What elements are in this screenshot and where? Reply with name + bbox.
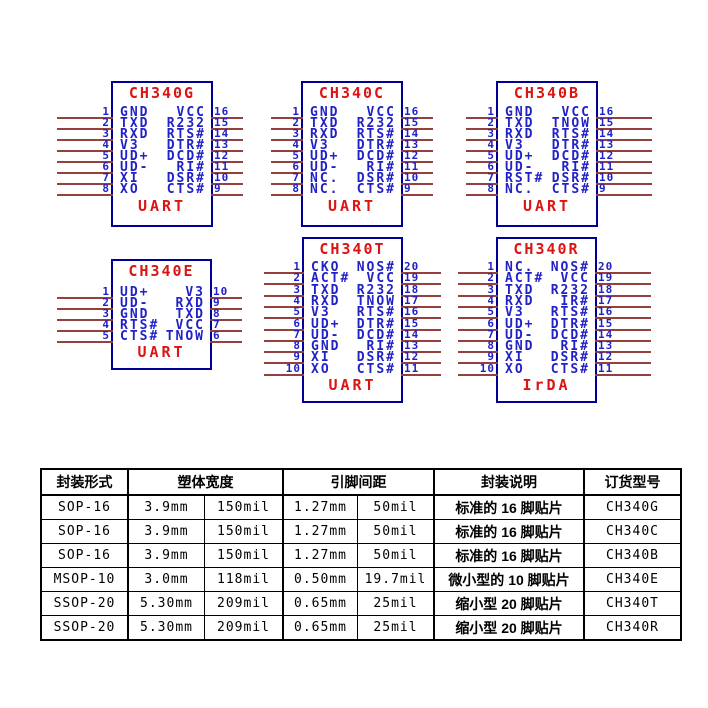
- table-cell: 50mil: [358, 495, 435, 520]
- pin-number: 9: [404, 183, 426, 194]
- pin-number: 16: [404, 306, 426, 317]
- pin-number: 5: [473, 306, 495, 317]
- pin-number: 11: [598, 363, 620, 374]
- pin-number: 5: [279, 306, 301, 317]
- chip-title: CH340G: [113, 85, 211, 101]
- table-header-row: 封装形式塑体宽度引脚间距封装说明订货型号: [41, 469, 681, 495]
- table-cell: 3.9mm: [128, 544, 205, 568]
- pin-number: 12: [598, 351, 620, 362]
- chip-title: CH340B: [498, 85, 596, 101]
- pin-label: XO: [505, 363, 525, 376]
- table-cell: SOP-16: [41, 520, 128, 544]
- chip-function-label: UART: [113, 344, 210, 360]
- chip-title: CH340T: [304, 241, 401, 257]
- table-cell: 标准的 16 脚贴片: [434, 520, 584, 544]
- package-spec-table-wrap: 封装形式塑体宽度引脚间距封装说明订货型号 SOP-163.9mm150mil1.…: [40, 468, 682, 641]
- table-cell: 3.9mm: [128, 520, 205, 544]
- table-cell: 5.30mm: [128, 592, 205, 616]
- pin-number: 3: [473, 284, 495, 295]
- table-cell: 209mil: [205, 592, 284, 616]
- table-cell: 50mil: [358, 544, 435, 568]
- table-cell: 微小型的 10 脚贴片: [434, 568, 584, 592]
- table-cell: 25mil: [358, 616, 435, 641]
- pin-number: 11: [404, 363, 426, 374]
- table-cell: 1.27mm: [283, 520, 358, 544]
- pin-number: 9: [599, 183, 621, 194]
- table-cell: CH340R: [584, 616, 681, 641]
- table-header-cell: 封装形式: [41, 469, 128, 495]
- pin-number: 9: [214, 183, 236, 194]
- pin-number: 2: [279, 272, 301, 283]
- chip-function-label: UART: [304, 377, 401, 393]
- table-cell: CH340B: [584, 544, 681, 568]
- table-cell: 0.50mm: [283, 568, 358, 592]
- pin-number: 18: [404, 284, 426, 295]
- chip-title: CH340E: [113, 263, 210, 279]
- pin-label: CTS#: [552, 183, 591, 196]
- chip-ch340r: CH340RNC.1ACT#2TXD3RXD4V35UD+6UD-7GND8XI…: [496, 237, 597, 403]
- pin-label: TNOW: [166, 330, 205, 343]
- table-row: SOP-163.9mm150mil1.27mm50mil标准的 16 脚贴片CH…: [41, 520, 681, 544]
- table-cell: 3.9mm: [128, 495, 205, 520]
- table-cell: CH340T: [584, 592, 681, 616]
- pin-label: XO: [120, 183, 140, 196]
- chip-function-label: UART: [303, 198, 401, 214]
- chip-ch340b: CH340BGND1TXD2RXD3V34UD+5UD-6RST#7NC.8VC…: [496, 81, 598, 227]
- table-cell: 150mil: [205, 544, 284, 568]
- pin-number: 6: [279, 318, 301, 329]
- table-row: SOP-163.9mm150mil1.27mm50mil标准的 16 脚贴片CH…: [41, 544, 681, 568]
- pin-number: 15: [404, 318, 426, 329]
- pin-number: 12: [404, 351, 426, 362]
- pin-number: 6: [473, 318, 495, 329]
- table-cell: 标准的 16 脚贴片: [434, 495, 584, 520]
- chip-function-label: IrDA: [498, 377, 595, 393]
- pin-label: NC.: [505, 183, 534, 196]
- package-spec-table: 封装形式塑体宽度引脚间距封装说明订货型号 SOP-163.9mm150mil1.…: [40, 468, 682, 641]
- table-row: SSOP-205.30mm209mil0.65mm25mil缩小型 20 脚贴片…: [41, 592, 681, 616]
- pin-number: 5: [88, 330, 110, 341]
- pin-number: 2: [473, 272, 495, 283]
- pin-label: CTS#: [357, 363, 396, 376]
- chip-function-label: UART: [498, 198, 596, 214]
- chip-title: CH340C: [303, 85, 401, 101]
- pin-number: 8: [88, 183, 110, 194]
- pin-label: CTS#: [357, 183, 396, 196]
- table-cell: 50mil: [358, 520, 435, 544]
- chip-ch340g: CH340GGND1TXD2RXD3V34UD+5UD-6XI7XO8VCC16…: [111, 81, 213, 227]
- pin-number: 10: [279, 363, 301, 374]
- pin-number: 9: [473, 351, 495, 362]
- table-row: MSOP-103.0mm118mil0.50mm19.7mil微小型的 10 脚…: [41, 568, 681, 592]
- table-cell: 1.27mm: [283, 544, 358, 568]
- pin-number: 18: [598, 284, 620, 295]
- chip-ch340t: CH340TCKO1ACT#2TXD3RXD4V35UD+6UD-7GND8XI…: [302, 237, 403, 403]
- chip-ch340e: CH340EUD+1UD-2GND3RTS#4CTS#5V310RXD9TXD8…: [111, 259, 212, 370]
- table-cell: MSOP-10: [41, 568, 128, 592]
- table-body: SOP-163.9mm150mil1.27mm50mil标准的 16 脚贴片CH…: [41, 495, 681, 640]
- table-header-cell: 塑体宽度: [128, 469, 283, 495]
- chip-title: CH340R: [498, 241, 595, 257]
- table-header-cell: 封装说明: [434, 469, 584, 495]
- table-cell: 19.7mil: [358, 568, 435, 592]
- table-cell: 缩小型 20 脚贴片: [434, 616, 584, 641]
- table-cell: CH340G: [584, 495, 681, 520]
- chip-function-label: UART: [113, 198, 211, 214]
- table-cell: 0.65mm: [283, 616, 358, 641]
- pin-label: CTS#: [167, 183, 206, 196]
- table-cell: SSOP-20: [41, 592, 128, 616]
- table-cell: 209mil: [205, 616, 284, 641]
- pin-number: 6: [213, 330, 235, 341]
- pin-number: 8: [473, 183, 495, 194]
- table-row: SOP-163.9mm150mil1.27mm50mil标准的 16 脚贴片CH…: [41, 495, 681, 520]
- table-cell: 缩小型 20 脚贴片: [434, 592, 584, 616]
- table-header-cell: 订货型号: [584, 469, 681, 495]
- pin-number: 15: [598, 318, 620, 329]
- table-cell: 1.27mm: [283, 495, 358, 520]
- table-cell: 3.0mm: [128, 568, 205, 592]
- table-cell: CH340C: [584, 520, 681, 544]
- pin-label: CTS#: [551, 363, 590, 376]
- table-cell: 标准的 16 脚贴片: [434, 544, 584, 568]
- table-header-cell: 引脚间距: [283, 469, 434, 495]
- pin-label: CTS#: [120, 330, 159, 343]
- pin-label: NC.: [310, 183, 339, 196]
- pin-number: 16: [598, 306, 620, 317]
- table-cell: SOP-16: [41, 544, 128, 568]
- pin-number: 8: [278, 183, 300, 194]
- table-cell: 150mil: [205, 520, 284, 544]
- table-cell: SOP-16: [41, 495, 128, 520]
- table-cell: 0.65mm: [283, 592, 358, 616]
- chip-ch340c: CH340CGND1TXD2RXD3V34UD+5UD-6NC.7NC.8VCC…: [301, 81, 403, 227]
- table-cell: 150mil: [205, 495, 284, 520]
- pin-number: 9: [279, 351, 301, 362]
- table-cell: 25mil: [358, 592, 435, 616]
- table-row: SSOP-205.30mm209mil0.65mm25mil缩小型 20 脚贴片…: [41, 616, 681, 641]
- pin-label: XO: [311, 363, 331, 376]
- pin-number: 19: [598, 272, 620, 283]
- table-cell: SSOP-20: [41, 616, 128, 641]
- table-cell: CH340E: [584, 568, 681, 592]
- pin-number: 19: [404, 272, 426, 283]
- pin-number: 10: [473, 363, 495, 374]
- table-cell: 118mil: [205, 568, 284, 592]
- table-cell: 5.30mm: [128, 616, 205, 641]
- pin-number: 3: [279, 284, 301, 295]
